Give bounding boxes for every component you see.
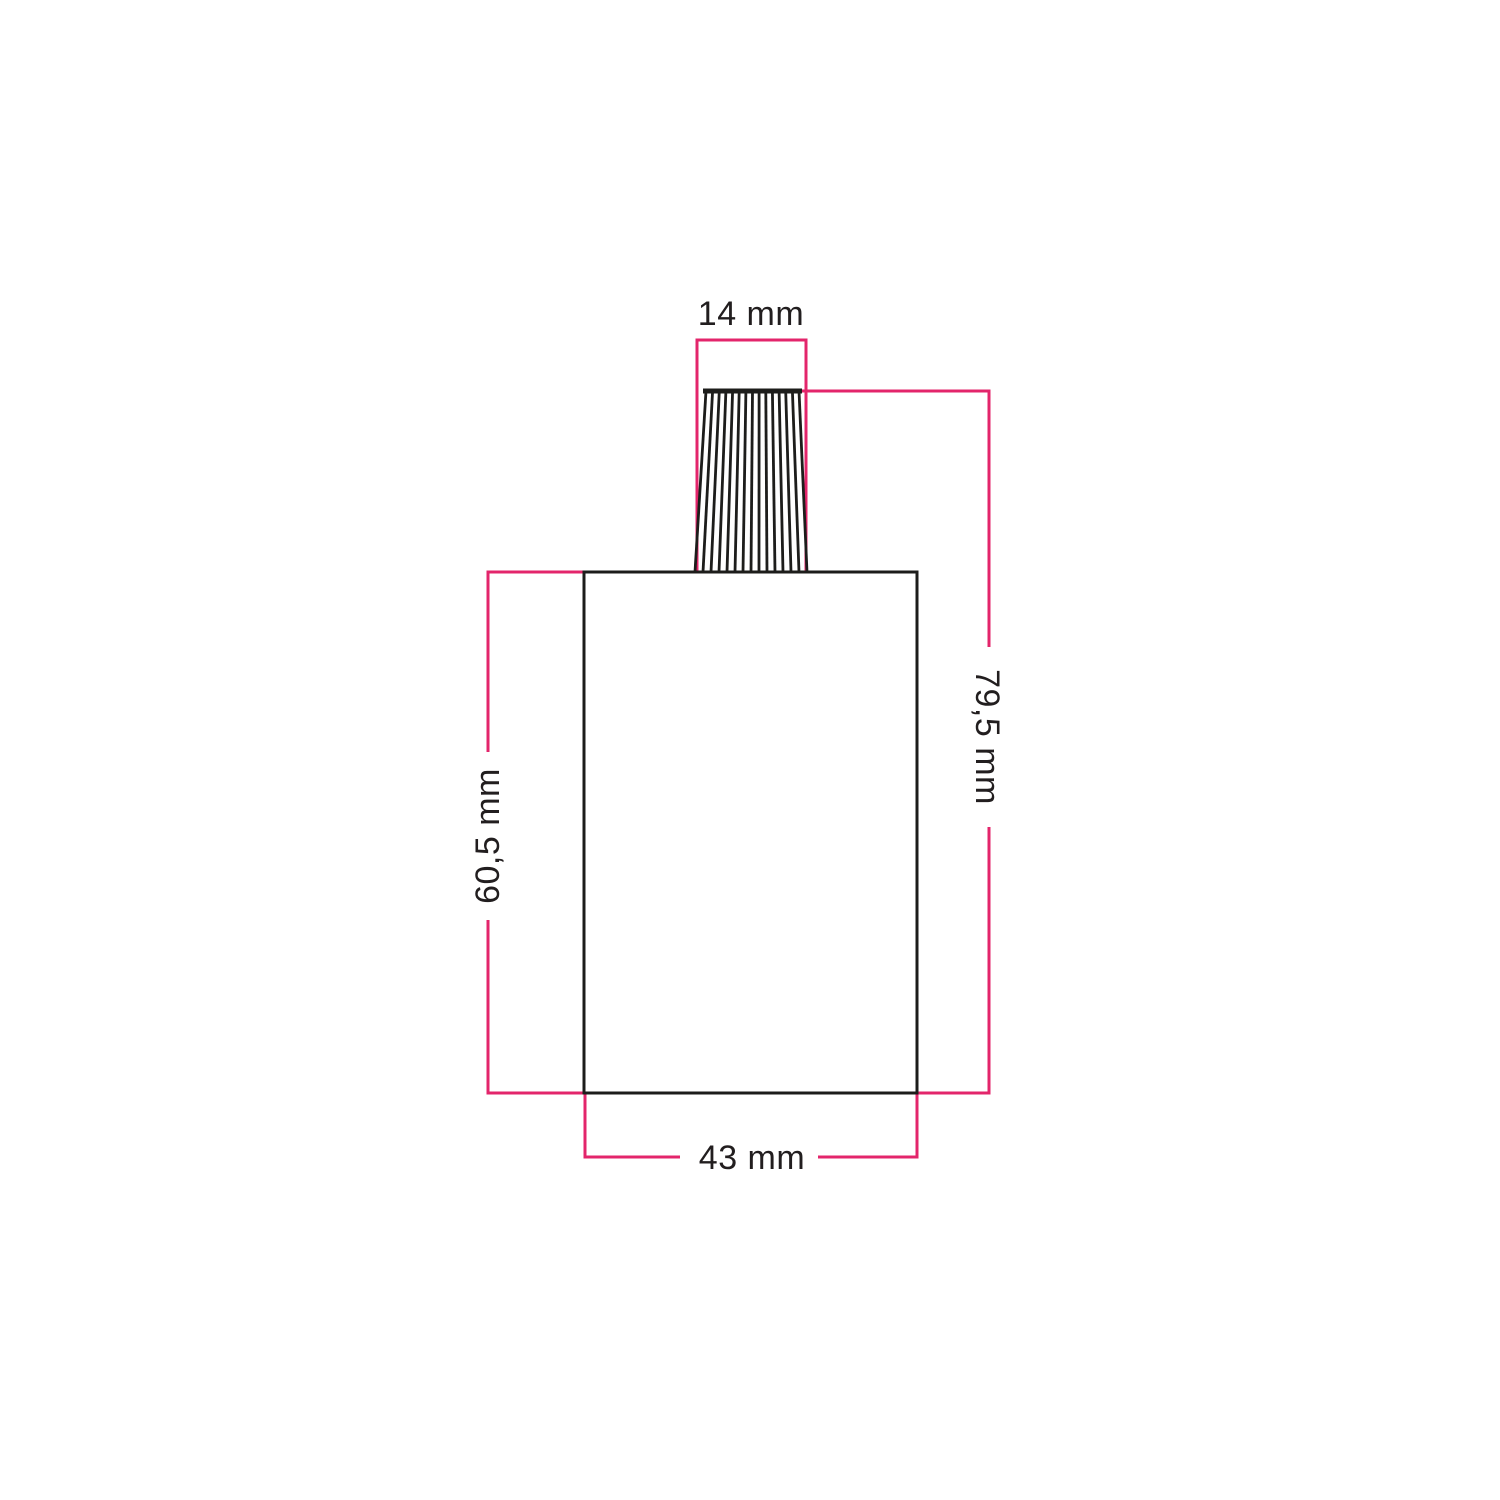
grip-rib [772, 391, 775, 572]
grip-rib [792, 391, 799, 572]
grip-rib [719, 391, 726, 572]
dim-body-width-right [818, 1093, 917, 1157]
grip-rib [786, 391, 791, 572]
grip-rib [779, 391, 783, 572]
product-outline [584, 391, 917, 1093]
dim-overall-height-lower [917, 827, 989, 1093]
grip-rib [751, 391, 753, 572]
label-body-height: 60,5 mm [469, 768, 507, 904]
label-body-width: 43 mm [699, 1139, 805, 1177]
socket-body-outline [584, 572, 917, 1093]
dimension-drawing: 14 mm 79,5 mm 60,5 mm 43 mm [0, 0, 1500, 1500]
grip-rib [735, 391, 739, 572]
label-overall-height: 79,5 mm [968, 669, 1006, 805]
cable-grip-ribs [695, 391, 807, 572]
technical-drawing-canvas: 14 mm 79,5 mm 60,5 mm 43 mm [0, 0, 1500, 1500]
dim-body-height-lower [488, 920, 584, 1093]
grip-rib [743, 391, 746, 572]
grip-rib [766, 391, 767, 572]
label-top-width: 14 mm [698, 295, 804, 333]
dim-body-height-upper [488, 572, 584, 752]
grip-rib [727, 391, 733, 572]
dim-body-width-left [585, 1093, 680, 1157]
